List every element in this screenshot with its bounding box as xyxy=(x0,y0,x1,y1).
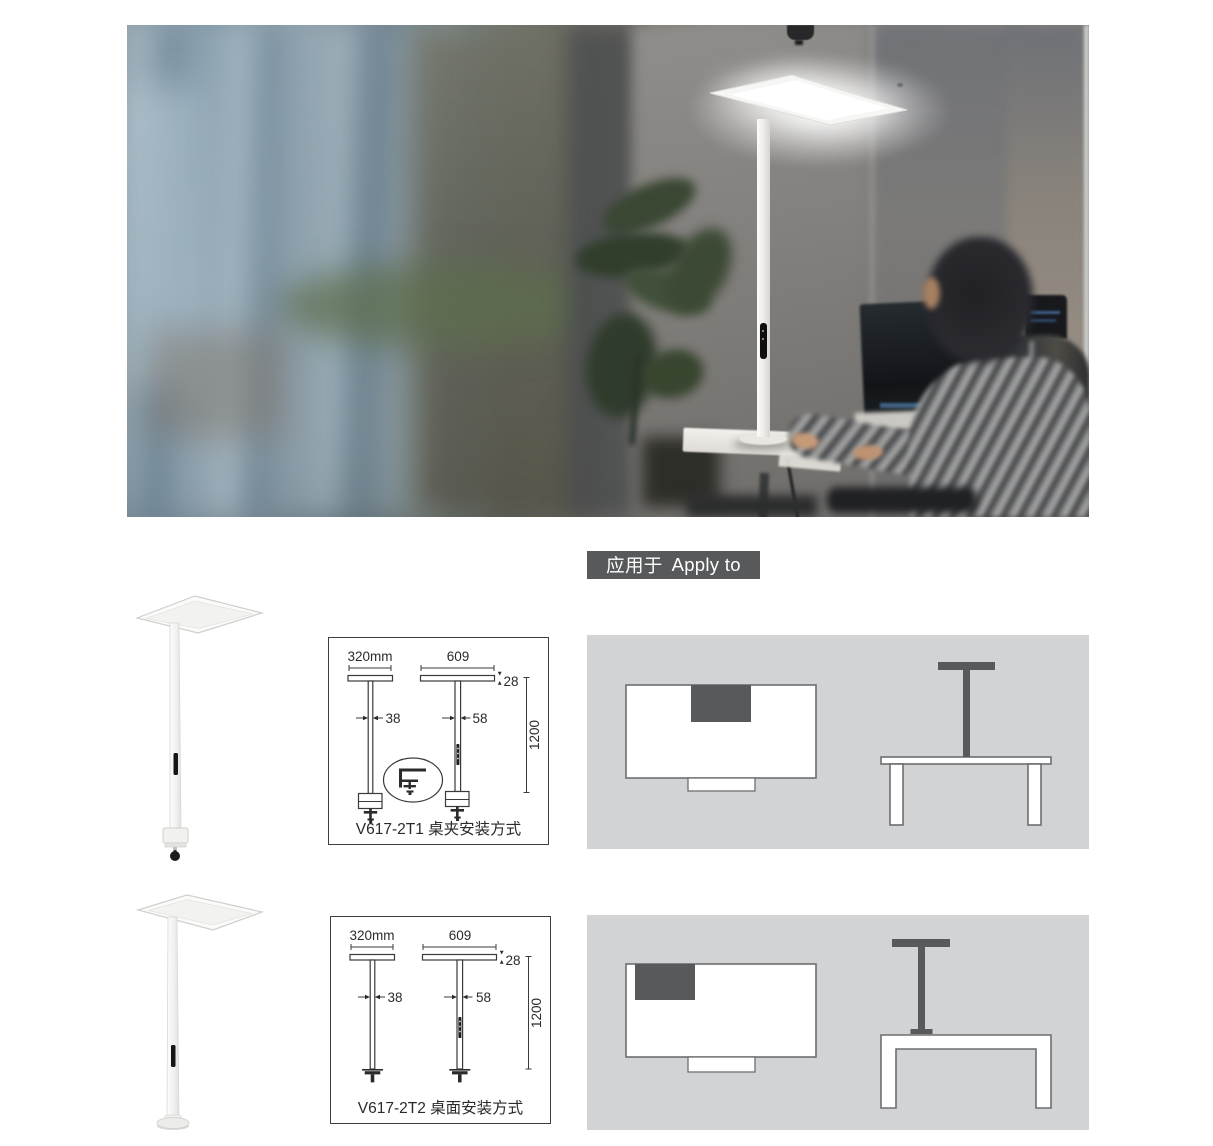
catalog-page: 应用于 Apply to xyxy=(0,0,1213,1146)
lamp-head-footprint xyxy=(635,964,695,1000)
person-hair xyxy=(927,237,1033,363)
desk-top-view xyxy=(626,964,816,1072)
lamp-control-strip xyxy=(174,753,179,775)
dim-head-front-width: 609 xyxy=(447,649,470,664)
lamp-control-strip xyxy=(171,1045,176,1067)
lamp-control-dot xyxy=(762,338,764,340)
clamp-icon xyxy=(399,769,426,796)
lamp-pole xyxy=(757,119,770,437)
lamp-pole-side xyxy=(918,947,925,1030)
lamp-render-desktop-mount xyxy=(115,877,265,1145)
dim-head-thickness: 28 xyxy=(506,953,521,968)
dim-head-side-width: 320mm xyxy=(349,928,394,943)
application-diagram-v617-2t2 xyxy=(587,915,1089,1130)
lamp-head-side xyxy=(892,939,950,947)
lamp-head xyxy=(137,596,262,633)
apply-to-badge: 应用于 Apply to xyxy=(587,551,760,579)
desk-top-view xyxy=(626,685,816,791)
control-strip xyxy=(456,744,459,765)
dim-pole-front-width: 58 xyxy=(473,711,488,726)
mount-caption: V617-2T2 桌面安装方式 xyxy=(331,1096,550,1118)
lamp-pole-side xyxy=(963,670,970,757)
dimension-drawing-v617-2t2: 320mm 609 38 58 28 1200 V617-2T2 桌面安装方式 xyxy=(330,916,551,1124)
dim-pole-height: 1200 xyxy=(527,720,542,750)
lamp-head xyxy=(138,895,262,930)
blurred-foliage-streak xyxy=(277,263,607,348)
lamp-control-strip xyxy=(760,323,767,359)
dim-head-front-width: 609 xyxy=(449,928,472,943)
dim-pole-side-width: 38 xyxy=(388,990,403,1005)
dimension-drawing-v617-2t1: 320mm 609 38 58 28 1200 V617-2T1 桌夹安装方式 xyxy=(328,637,549,845)
desk-side-view xyxy=(881,939,1051,1108)
dim-head-thickness: 28 xyxy=(504,674,519,689)
lamp-head-side xyxy=(938,662,995,670)
lamp-base-plate xyxy=(911,1029,933,1034)
desktop-base xyxy=(362,1069,470,1082)
lamp-head xyxy=(675,63,925,138)
dim-pole-height: 1200 xyxy=(529,998,544,1028)
desk-clamp xyxy=(163,828,188,861)
desk-base xyxy=(157,1115,189,1130)
control-strip xyxy=(458,1017,461,1038)
lamp-pole xyxy=(167,917,179,1119)
apply-to-label-en: Apply to xyxy=(672,554,741,576)
chair-armrest xyxy=(827,487,977,513)
ceiling-fixture xyxy=(787,25,814,40)
under-desk-shadow xyxy=(687,495,817,517)
blurred-table-hint xyxy=(147,330,287,440)
dim-pole-side-width: 38 xyxy=(386,711,401,726)
second-screen-line xyxy=(1030,311,1060,314)
second-screen-line xyxy=(1030,319,1056,322)
ceiling-fixture-tip xyxy=(795,40,803,45)
lamp-control-dot xyxy=(762,330,764,332)
dim-head-side-width: 320mm xyxy=(347,649,392,664)
mount-caption: V617-2T1 桌夹安装方式 xyxy=(329,817,548,839)
application-diagram-v617-2t1 xyxy=(587,635,1089,849)
lamp-render-clamp-mount xyxy=(115,590,300,862)
hero-photo xyxy=(127,25,1089,517)
desk-side-view xyxy=(881,662,1051,825)
dim-pole-front-width: 58 xyxy=(476,990,491,1005)
lamp-head-footprint xyxy=(691,685,751,722)
person-face xyxy=(923,277,940,309)
apply-to-label-zh: 应用于 xyxy=(606,552,662,578)
lamp-pole xyxy=(170,623,181,828)
